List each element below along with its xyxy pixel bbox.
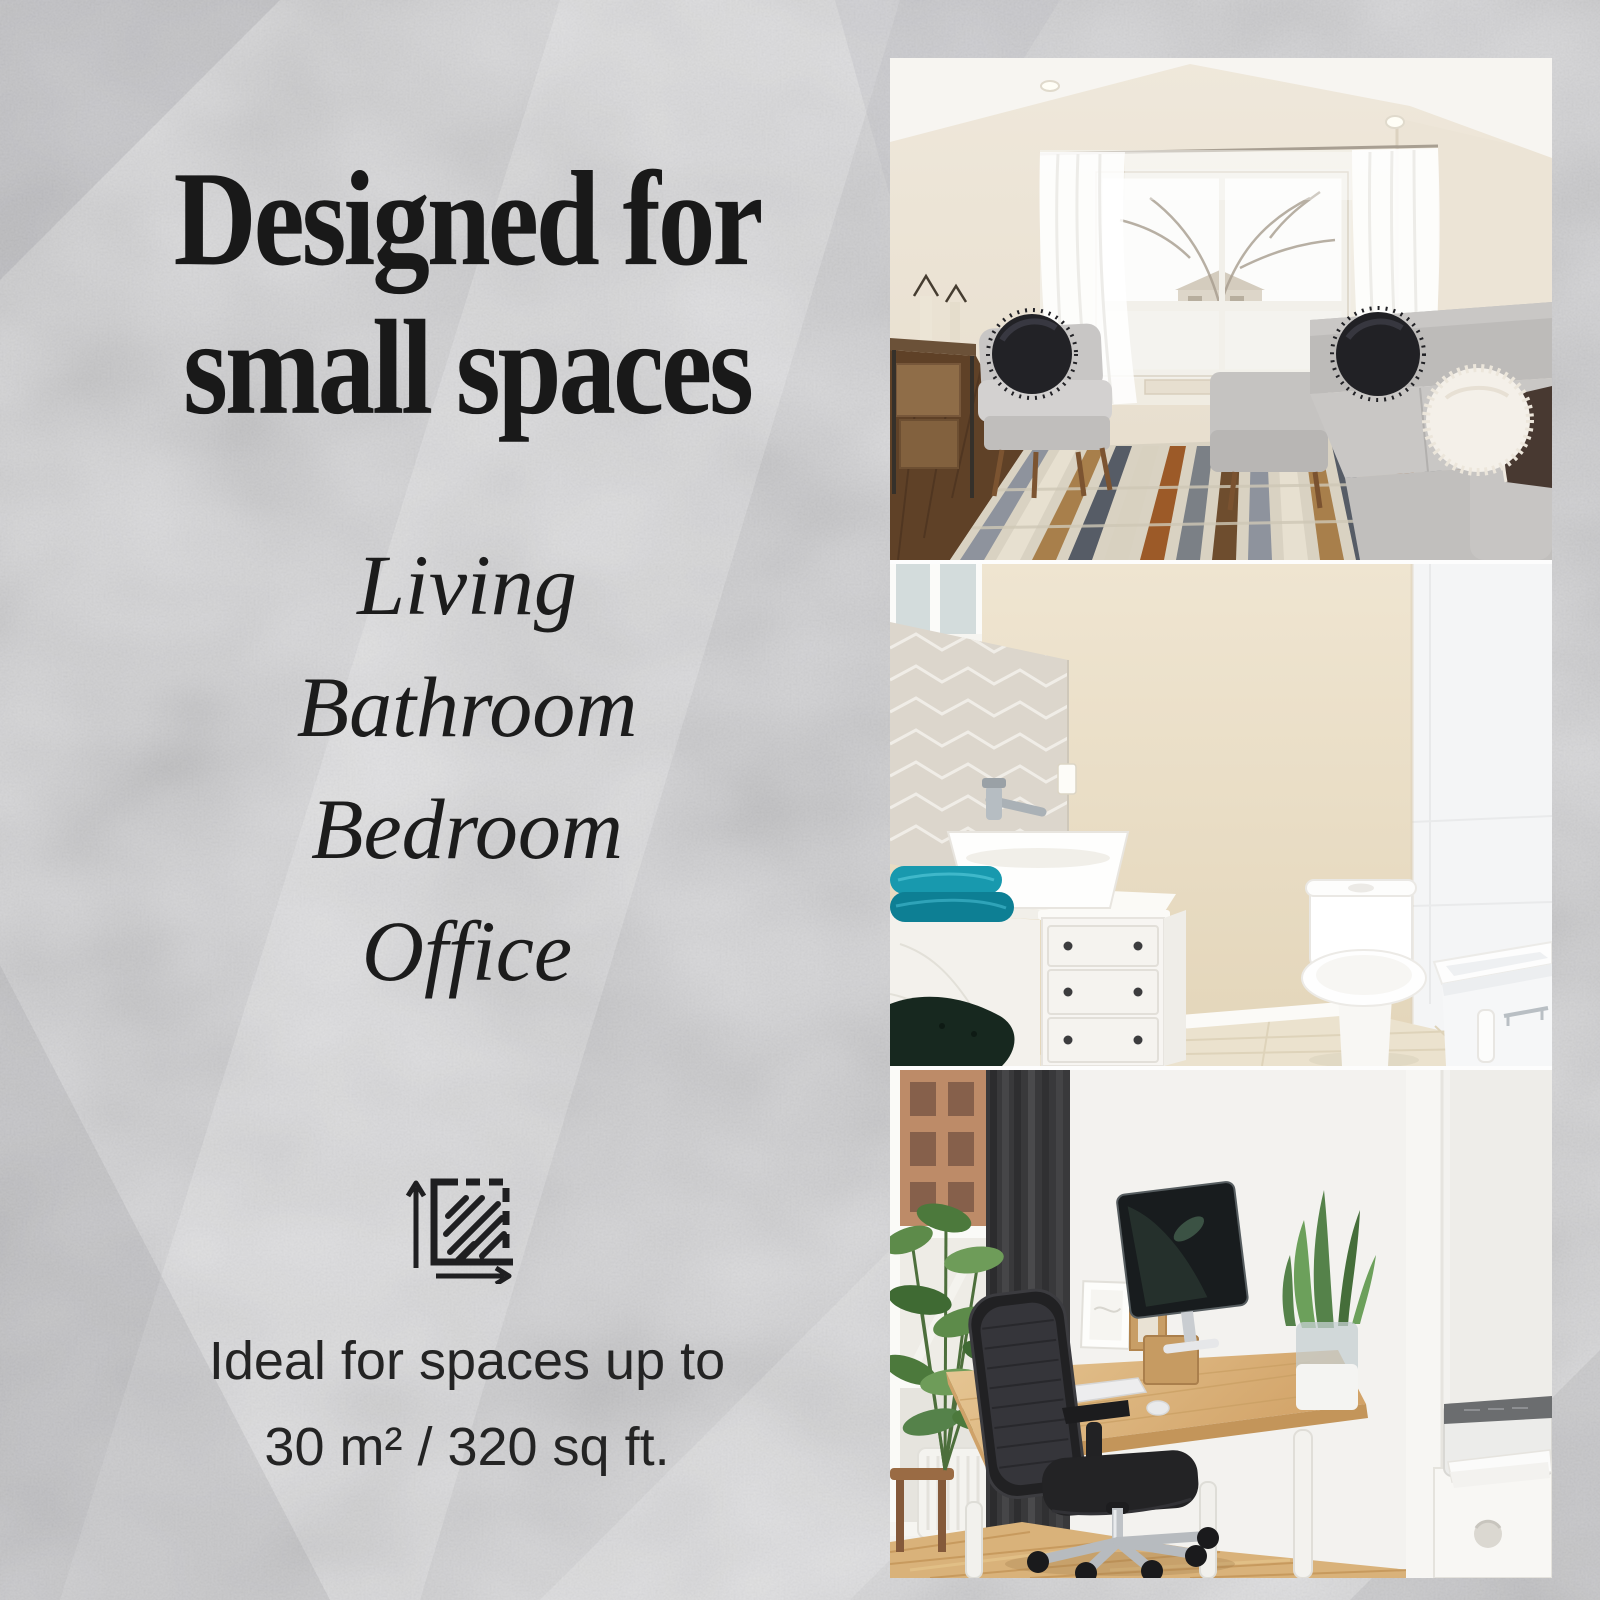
text-panel: Designed for small spaces Living Bathroo… <box>0 0 934 1600</box>
home-office-photo <box>890 1070 1552 1578</box>
room-item-bedroom: Bedroom <box>0 768 934 890</box>
bathroom-image <box>890 564 1552 1066</box>
caption-line-2: 30 m² / 320 sq ft. <box>0 1404 934 1490</box>
living-room-image <box>890 58 1552 560</box>
title-line-1: Designed for <box>0 145 934 294</box>
room-list: Living Bathroom Bedroom Office <box>0 524 934 1012</box>
bathroom-photo <box>890 564 1552 1066</box>
page-title: Designed for small spaces <box>0 145 934 442</box>
room-item-office: Office <box>0 890 934 1012</box>
caption-line-1: Ideal for spaces up to <box>0 1318 934 1404</box>
room-item-bathroom: Bathroom <box>0 646 934 768</box>
poster-canvas: Designed for small spaces Living Bathroo… <box>0 0 1600 1600</box>
area-caption: Ideal for spaces up to 30 m² / 320 sq ft… <box>0 1318 934 1490</box>
home-office-image <box>890 1070 1552 1578</box>
photo-collage <box>890 58 1552 1578</box>
area-dimensions-icon <box>402 1164 522 1284</box>
room-item-living: Living <box>0 524 934 646</box>
title-line-2: small spaces <box>0 294 934 443</box>
living-room-photo <box>890 58 1552 560</box>
